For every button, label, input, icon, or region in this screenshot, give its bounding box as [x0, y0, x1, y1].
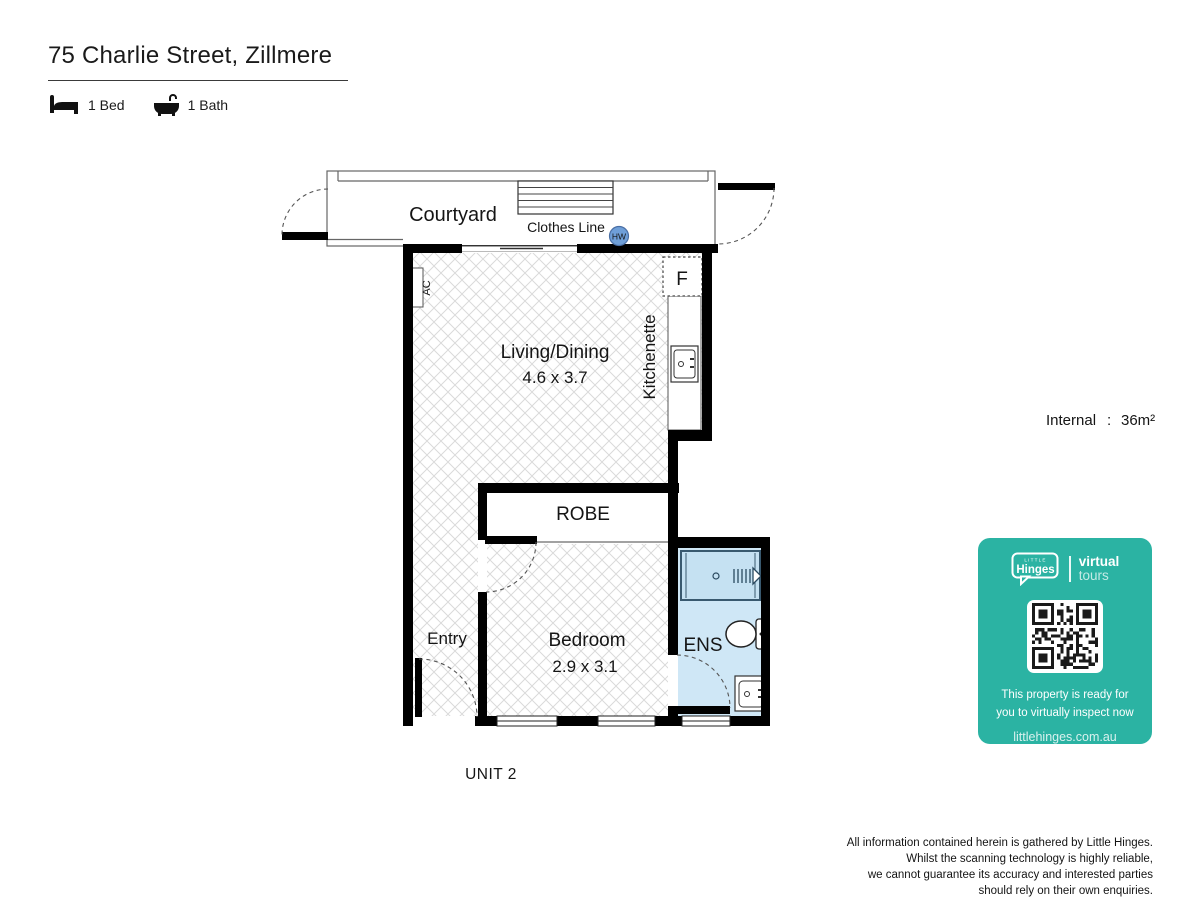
badge-text: This property is ready for you to virtua… [996, 685, 1133, 721]
disclaimer-line-3: we cannot guarantee its accuracy and int… [733, 868, 1153, 884]
clothes-line [518, 181, 613, 214]
page: 75 Charlie Street, Zillmere 1 Bed [0, 0, 1200, 900]
bedroom-label: Bedroom [548, 630, 625, 651]
logo-bubble: LITTLE Hinges [1011, 552, 1061, 586]
hw-label: HW [612, 232, 626, 242]
robe-label: ROBE [556, 504, 610, 525]
courtyard-label: Courtyard [409, 204, 497, 226]
disclaimer-line-4: should rely on their own enquiries. [733, 884, 1153, 900]
left-gate [282, 189, 328, 240]
badge-line-2: you to virtually inspect now [996, 705, 1133, 721]
bedroom-window-2 [598, 716, 655, 726]
kitchen-sink [671, 346, 698, 382]
ac-label: AC [421, 280, 433, 295]
qr-code [1027, 600, 1103, 673]
internal-area-label: Internal [1046, 412, 1096, 429]
disclaimer-line-1: All information contained herein is gath… [733, 836, 1153, 852]
disclaimer-line-2: Whilst the scanning technology is highly… [733, 852, 1153, 868]
qr-pattern [1032, 603, 1098, 669]
kitchenette-label: Kitchenette [640, 314, 659, 399]
floorplan: HW Courtyard Clothes Line F AC Kitchenet… [0, 0, 1200, 900]
clothes-line-label: Clothes Line [527, 219, 605, 235]
hinges-logo: LITTLE Hinges virtual tours [1011, 552, 1120, 586]
virtual-tour-badge: LITTLE Hinges virtual tours This propert… [978, 538, 1152, 744]
ensuite-label: ENS [683, 635, 722, 656]
internal-area-colon: : [1107, 412, 1111, 429]
unit-label: UNIT 2 [465, 766, 517, 783]
badge-url: littlehinges.com.au [1013, 730, 1117, 744]
tagline-tours: tours [1079, 569, 1120, 583]
entry-label: Entry [427, 629, 467, 648]
logo-tagline: virtual tours [1079, 555, 1120, 583]
ensuite-window [682, 716, 730, 726]
disclaimer: All information contained herein is gath… [733, 836, 1153, 899]
fridge-label: F [676, 269, 688, 290]
shower [681, 551, 761, 600]
hot-water-unit: HW [610, 227, 629, 246]
bedroom-window [497, 716, 557, 726]
bedroom-dims: 2.9 x 3.1 [552, 657, 617, 676]
logo-divider [1069, 556, 1071, 582]
tagline-virtual: virtual [1079, 555, 1120, 569]
internal-area: Internal : 36m² [1046, 412, 1155, 429]
logo-hinges: Hinges [1016, 564, 1054, 576]
living-label: Living/Dining [501, 342, 610, 363]
living-dims: 4.6 x 3.7 [522, 368, 587, 387]
right-gate [718, 183, 775, 244]
badge-line-1: This property is ready for [996, 687, 1133, 703]
internal-area-value: 36m² [1121, 412, 1155, 429]
logo-little: LITTLE [1024, 558, 1046, 563]
